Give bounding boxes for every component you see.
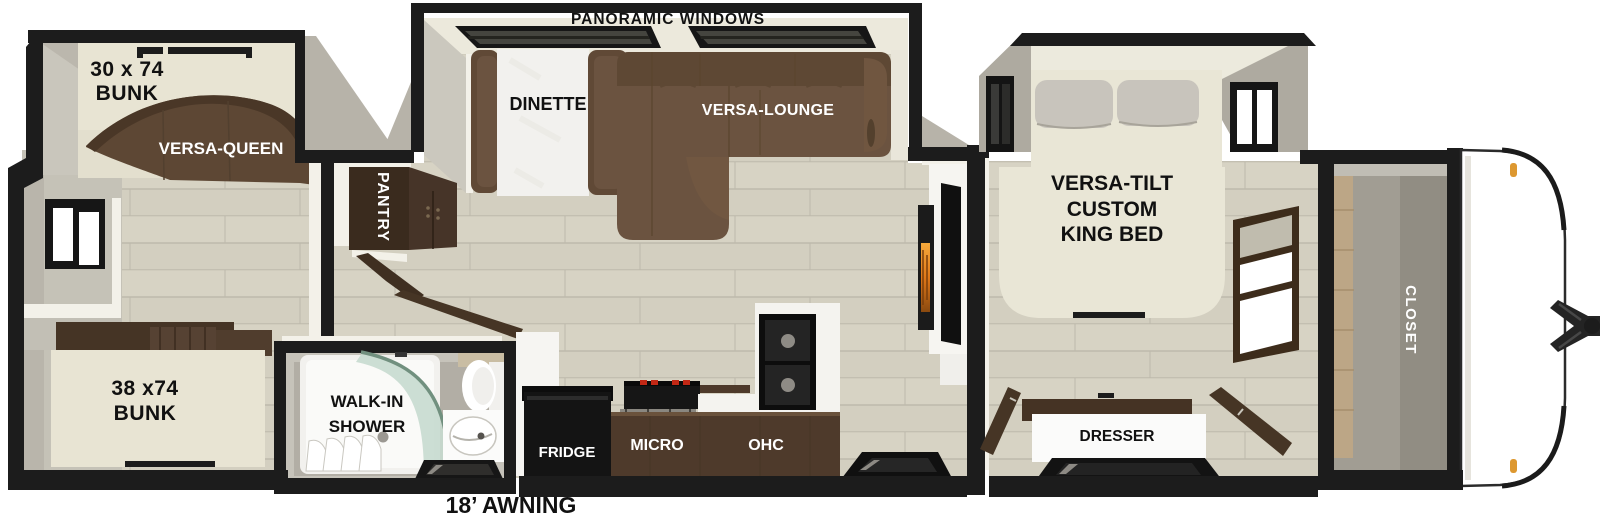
svg-text:PANORAMIC WINDOWS: PANORAMIC WINDOWS (571, 11, 765, 28)
svg-text:30 x 74: 30 x 74 (90, 58, 164, 81)
svg-text:MICRO: MICRO (630, 437, 683, 454)
svg-text:DRESSER: DRESSER (1080, 428, 1155, 445)
svg-text:VERSA-TILT: VERSA-TILT (1051, 172, 1173, 195)
svg-text:KING BED: KING BED (1061, 223, 1164, 246)
svg-text:38 x74: 38 x74 (111, 377, 178, 400)
svg-text:PANTRY: PANTRY (374, 172, 391, 242)
svg-text:WALK-IN: WALK-IN (331, 392, 404, 411)
svg-text:18’ AWNING: 18’ AWNING (446, 492, 577, 516)
svg-text:CUSTOM: CUSTOM (1067, 198, 1158, 221)
svg-text:FRIDGE: FRIDGE (539, 444, 596, 461)
svg-text:CLOSET: CLOSET (1402, 285, 1419, 355)
svg-text:VERSA-QUEEN: VERSA-QUEEN (159, 139, 284, 158)
svg-text:VERSA-LOUNGE: VERSA-LOUNGE (702, 102, 835, 119)
svg-text:BUNK: BUNK (96, 82, 159, 105)
svg-text:SHOWER: SHOWER (329, 417, 406, 436)
svg-text:BUNK: BUNK (114, 402, 177, 425)
svg-text:OHC: OHC (748, 437, 784, 454)
svg-text:DINETTE: DINETTE (509, 94, 586, 114)
